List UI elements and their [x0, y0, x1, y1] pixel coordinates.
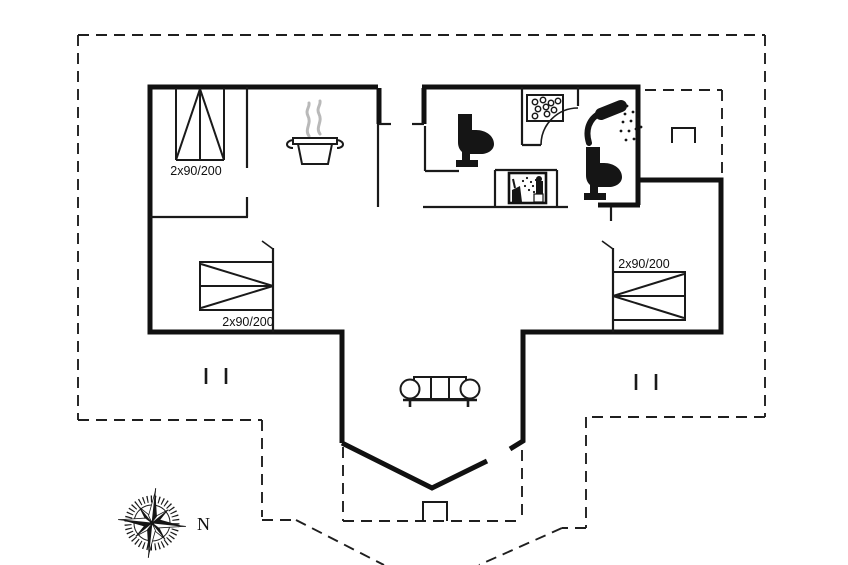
double-bed-left-icon — [200, 262, 273, 310]
bed-size-label-right: 2x90/200 — [618, 257, 669, 271]
exterior-walls — [150, 87, 721, 488]
compass-rose-icon — [115, 485, 190, 562]
wall-tick-pair-left — [206, 368, 226, 384]
overhang-left-terrace-edge — [262, 420, 296, 520]
bedroom3-door-leaf — [602, 241, 613, 249]
overhang-left-diagonal-edge — [296, 520, 384, 565]
steam-lines — [307, 101, 320, 136]
overhang-right-terrace-edge — [562, 417, 586, 528]
interior-walls — [150, 87, 613, 332]
terrace-outline-top-right — [645, 90, 722, 178]
bunk-bed-outline — [176, 88, 224, 160]
sofa-legs — [410, 401, 468, 407]
bay-window-walls — [342, 443, 487, 488]
overhang-right-diagonal-edge — [479, 528, 562, 565]
wc-west-wall — [425, 126, 459, 171]
whirlpool-room-door-arc — [541, 108, 578, 145]
shower-icon — [587, 105, 642, 143]
west-wing-walls — [150, 87, 378, 443]
sofa-icon — [401, 377, 480, 407]
sofa-cushion-dividers — [431, 377, 449, 399]
toilet-silhouette — [584, 147, 622, 200]
toilet-silhouette — [456, 114, 494, 167]
toilet-left-icon — [456, 114, 494, 167]
sofa-back — [414, 377, 466, 399]
bed-size-label-bunk: 2x90/200 — [170, 164, 221, 178]
shower-head — [601, 106, 621, 114]
wall-tick-pair-right — [636, 374, 656, 390]
stove-pot-icon — [287, 101, 343, 164]
pot-body — [298, 144, 332, 164]
toilet-right-icon — [584, 147, 622, 200]
east-wing-walls — [510, 180, 721, 449]
step-marker-top-icon — [672, 128, 695, 143]
sofa-arm-left — [401, 380, 420, 399]
bedroom2-door-leaf — [262, 241, 273, 249]
step-marker-bottom-icon — [423, 502, 447, 521]
floor-plan-drawing: 2x90/200 2x90/200 2x90/200 — [0, 0, 848, 565]
compass-north-label: N — [197, 514, 210, 534]
double-bed-right-icon — [613, 272, 685, 320]
bunk-bed-icon — [176, 88, 224, 160]
floor-plan-canvas: 2x90/200 2x90/200 2x90/200 — [0, 0, 848, 565]
whirlpool-icon — [527, 95, 563, 121]
sauna-bench — [534, 194, 543, 202]
sauna-icon — [509, 173, 546, 203]
sofa-arm-right — [461, 380, 480, 399]
bed-size-label-left: 2x90/200 — [222, 315, 273, 329]
